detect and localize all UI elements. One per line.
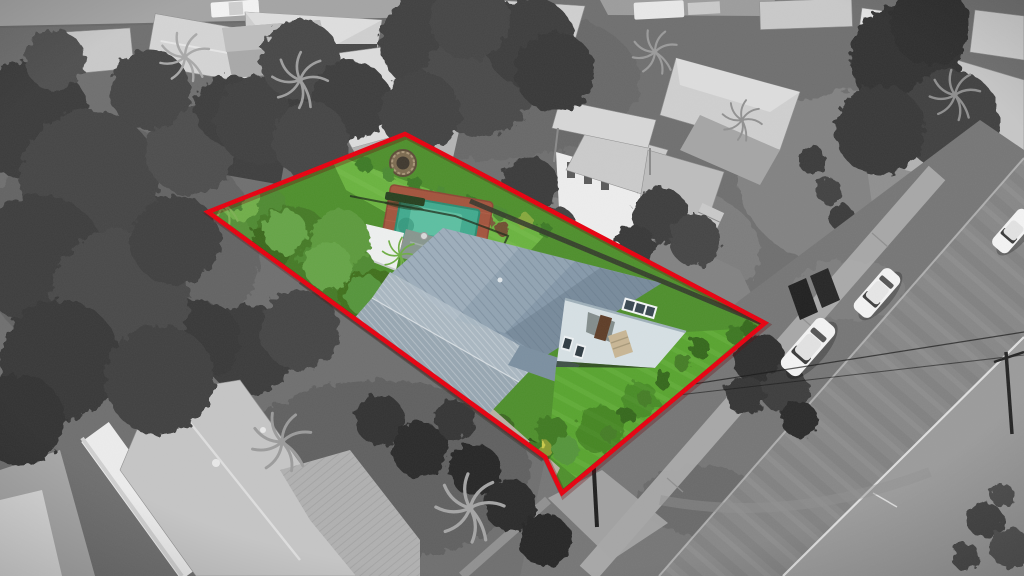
vignette [0,0,1024,576]
aerial-photo [0,0,1024,576]
aerial-photo-canvas [0,0,1024,576]
